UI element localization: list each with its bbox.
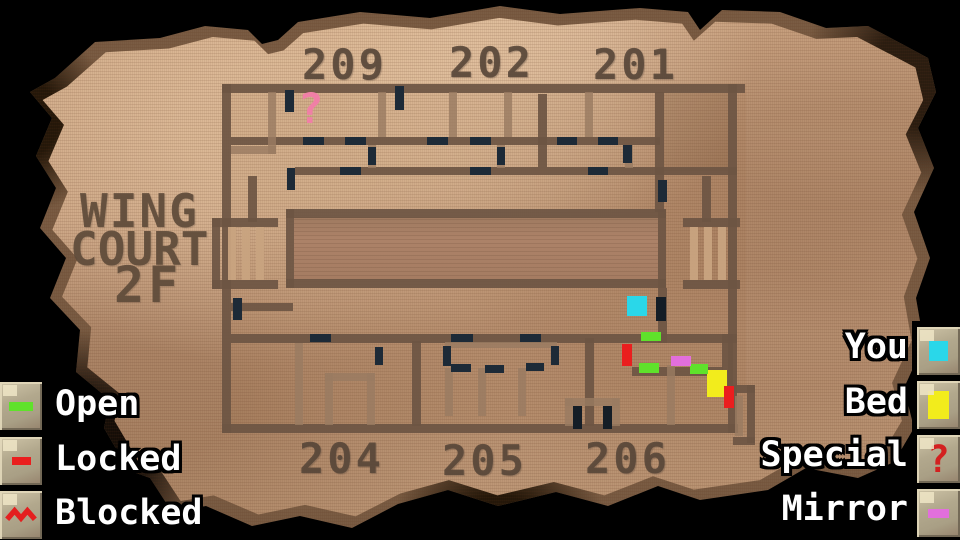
map-shaded-area bbox=[663, 93, 729, 171]
game-map-screen[interactable]: 209 202 201 204 205 206 WING COURT 2F ? … bbox=[0, 0, 960, 540]
legend-mirror-label: Mirror bbox=[708, 491, 908, 527]
wall-segment bbox=[412, 341, 421, 426]
wall-segment bbox=[295, 167, 737, 175]
door-dash bbox=[470, 137, 491, 145]
you-marker bbox=[627, 296, 647, 316]
wall-segment bbox=[478, 368, 486, 416]
door-dash bbox=[551, 346, 559, 365]
door-dash bbox=[451, 334, 473, 342]
locked-door-icon bbox=[12, 457, 31, 465]
wall-segment bbox=[702, 176, 711, 222]
mirror-legend-tile bbox=[917, 489, 960, 537]
legend-locked-label: Locked bbox=[55, 441, 181, 477]
open-door bbox=[641, 332, 661, 341]
door-dash bbox=[310, 334, 331, 342]
door-dash bbox=[497, 147, 505, 165]
legend-blocked-label: Blocked bbox=[55, 495, 203, 531]
door-dash bbox=[303, 137, 324, 145]
wall-segment bbox=[286, 279, 666, 288]
door-dash bbox=[588, 167, 608, 175]
wall-segment bbox=[378, 92, 386, 137]
wall-segment bbox=[286, 209, 294, 288]
stair-slat bbox=[228, 227, 236, 280]
wall-segment bbox=[212, 218, 278, 227]
wall-segment bbox=[504, 92, 512, 137]
legend-open-label: Open bbox=[55, 386, 139, 422]
wall-segment bbox=[518, 368, 526, 416]
legend-bed-label: Bed bbox=[708, 384, 908, 420]
stair-slat bbox=[256, 227, 264, 280]
door-dash bbox=[375, 347, 383, 365]
door-dash bbox=[520, 334, 541, 342]
mirror-icon bbox=[928, 509, 949, 518]
central-courtyard bbox=[294, 217, 658, 280]
room-label-201: 201 bbox=[593, 40, 678, 89]
wall-segment bbox=[212, 218, 220, 289]
room-label-202: 202 bbox=[449, 38, 534, 87]
wall-segment bbox=[212, 280, 278, 289]
wall-segment bbox=[222, 424, 738, 433]
dark-door-dash bbox=[573, 406, 582, 429]
door-dash bbox=[285, 90, 294, 112]
door-dash bbox=[345, 137, 366, 145]
map-title-line3: 2F bbox=[114, 256, 182, 314]
stair-slat bbox=[704, 227, 712, 280]
door-dash bbox=[526, 363, 544, 371]
wall-segment bbox=[248, 176, 257, 222]
special-legend-tile: ? bbox=[917, 435, 960, 483]
stair-slat bbox=[690, 227, 698, 280]
wall-segment bbox=[445, 342, 557, 348]
legend-special-label: Special bbox=[708, 437, 908, 473]
wall-segment bbox=[667, 365, 675, 425]
door-dash bbox=[451, 364, 471, 372]
room-label-204: 204 bbox=[299, 434, 384, 483]
you-legend-tile bbox=[917, 327, 960, 375]
wall-segment bbox=[268, 92, 276, 154]
open-door bbox=[639, 363, 659, 373]
door-dash bbox=[598, 137, 618, 145]
door-dash bbox=[623, 145, 632, 163]
open-door-legend-tile bbox=[0, 382, 42, 430]
door-dash bbox=[557, 137, 577, 145]
wall-segment bbox=[449, 92, 457, 137]
wall-segment bbox=[658, 209, 666, 288]
open-door bbox=[690, 364, 708, 374]
door-dash bbox=[233, 298, 242, 320]
special-question-marker: ? bbox=[298, 88, 323, 130]
stair-slat bbox=[718, 227, 726, 280]
dark-door-dash bbox=[603, 406, 612, 429]
blocked-door-legend-tile bbox=[0, 491, 42, 539]
wall-segment bbox=[538, 94, 547, 167]
room-label-205: 205 bbox=[442, 436, 527, 485]
room-label-209: 209 bbox=[302, 40, 387, 89]
door-dash bbox=[485, 365, 504, 373]
bed-icon bbox=[928, 391, 949, 419]
stair-slat bbox=[242, 227, 250, 280]
locked-door-legend-tile bbox=[0, 437, 42, 485]
bed-legend-tile bbox=[917, 381, 960, 429]
mirror-marker bbox=[671, 356, 691, 366]
door-dash bbox=[287, 168, 295, 190]
dark-door-dash bbox=[656, 297, 666, 321]
you-icon bbox=[929, 341, 948, 361]
legend-you-label: You bbox=[708, 329, 908, 365]
wall-segment bbox=[445, 368, 453, 416]
special-question-icon: ? bbox=[927, 441, 949, 478]
wall-segment bbox=[683, 218, 740, 227]
wall-segment bbox=[286, 209, 666, 218]
open-door-icon bbox=[9, 402, 33, 411]
blocked-zigzag-icon bbox=[5, 505, 37, 525]
door-dash bbox=[427, 137, 448, 145]
door-dash bbox=[395, 86, 404, 110]
door-dash bbox=[470, 167, 491, 175]
wall-segment bbox=[325, 373, 375, 381]
door-dash bbox=[658, 180, 667, 202]
wall-segment bbox=[585, 338, 594, 426]
door-dash bbox=[340, 167, 361, 175]
wall-segment bbox=[585, 92, 593, 137]
wall-segment bbox=[683, 280, 740, 289]
room-label-206: 206 bbox=[585, 434, 670, 483]
wall-segment bbox=[295, 343, 303, 425]
wall-segment bbox=[565, 398, 619, 406]
locked-door bbox=[622, 344, 632, 366]
door-dash bbox=[443, 346, 451, 366]
wall-segment bbox=[231, 146, 276, 154]
door-dash bbox=[368, 147, 376, 165]
